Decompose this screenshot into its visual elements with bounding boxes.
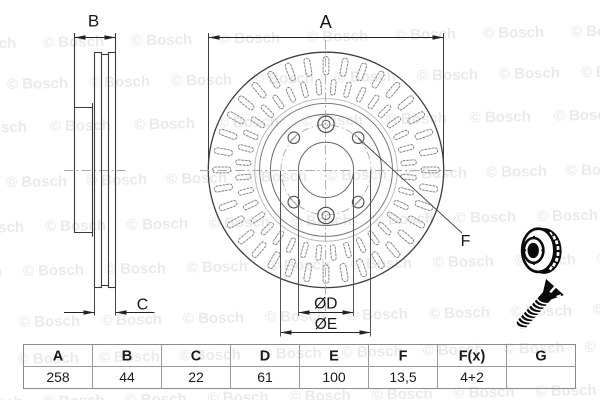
svg-text:© Bosch: © Bosch xyxy=(19,313,80,331)
svg-text:© Bosch: © Bosch xyxy=(218,113,279,131)
svg-text:ØE: ØE xyxy=(315,316,337,333)
svg-text:© Bosch: © Bosch xyxy=(371,385,432,400)
svg-text:© Bosch: © Bosch xyxy=(125,390,186,400)
svg-text:100: 100 xyxy=(322,369,346,385)
svg-text:© Bosch: © Bosch xyxy=(584,338,600,356)
svg-text:A: A xyxy=(53,349,64,365)
svg-text:F: F xyxy=(461,233,471,250)
svg-text:© Bosch: © Bosch xyxy=(0,394,23,400)
svg-text:© Bosch: © Bosch xyxy=(433,253,494,271)
svg-text:© Bosch: © Bosch xyxy=(105,260,166,278)
svg-text:61: 61 xyxy=(257,369,273,385)
svg-text:© Bosch: © Bosch xyxy=(347,306,408,324)
svg-text:© Bosch: © Bosch xyxy=(183,309,244,327)
svg-text:© Bosch: © Bosch xyxy=(7,75,68,93)
svg-text:© Bosch: © Bosch xyxy=(429,304,490,322)
svg-text:© Bosch: © Bosch xyxy=(187,258,248,276)
svg-text:© Bosch: © Bosch xyxy=(43,33,104,51)
svg-text:© Bosch: © Bosch xyxy=(499,65,560,83)
svg-text:ØD: ØD xyxy=(314,296,337,313)
svg-text:© Bosch: © Bosch xyxy=(0,219,24,237)
svg-text:D: D xyxy=(260,349,270,365)
svg-text:A: A xyxy=(320,12,332,32)
svg-text:F(x): F(x) xyxy=(459,349,486,365)
svg-text:© Bosch: © Bosch xyxy=(597,250,600,268)
svg-text:4+2: 4+2 xyxy=(460,369,484,385)
svg-text:G: G xyxy=(535,349,546,365)
svg-text:© Bosch: © Bosch xyxy=(566,161,600,179)
svg-text:© Bosch: © Bosch xyxy=(219,29,280,47)
svg-text:© Bosch: © Bosch xyxy=(0,263,2,281)
svg-text:© Bosch: © Bosch xyxy=(43,392,104,400)
svg-text:258: 258 xyxy=(46,369,70,385)
svg-text:© Bosch: © Bosch xyxy=(23,262,84,280)
svg-text:© Bosch: © Bosch xyxy=(470,108,531,126)
svg-text:© Bosch: © Bosch xyxy=(101,311,162,329)
svg-text:© Bosch: © Bosch xyxy=(537,207,598,225)
svg-text:© Bosch: © Bosch xyxy=(18,350,79,368)
svg-text:© Bosch: © Bosch xyxy=(395,26,456,44)
svg-text:© Bosch: © Bosch xyxy=(171,71,232,89)
svg-text:© Bosch: © Bosch xyxy=(166,170,227,188)
svg-text:© Bosch: © Bosch xyxy=(131,31,192,49)
svg-text:© Bosch: © Bosch xyxy=(483,24,544,42)
svg-text:© Bosch: © Bosch xyxy=(0,35,16,53)
svg-text:© Bosch: © Bosch xyxy=(253,70,314,88)
svg-text:© Bosch: © Bosch xyxy=(341,343,402,361)
svg-text:© Bosch: © Bosch xyxy=(134,115,195,133)
svg-text:B: B xyxy=(122,349,132,365)
svg-text:© Bosch: © Bosch xyxy=(486,163,547,181)
svg-text:44: 44 xyxy=(119,369,135,385)
svg-text:© Bosch: © Bosch xyxy=(89,73,150,91)
svg-text:© Bosch: © Bosch xyxy=(581,63,600,81)
svg-text:© Bosch: © Bosch xyxy=(417,66,478,84)
svg-text:C: C xyxy=(191,349,202,365)
svg-text:E: E xyxy=(329,349,339,365)
svg-text:13,5: 13,5 xyxy=(389,369,416,385)
svg-text:C: C xyxy=(137,297,149,314)
svg-text:B: B xyxy=(88,12,99,31)
svg-text:© Bosch: © Bosch xyxy=(593,301,600,319)
svg-text:© Bosch: © Bosch xyxy=(307,28,368,46)
svg-text:© Bosch: © Bosch xyxy=(326,166,387,184)
svg-text:22: 22 xyxy=(188,369,204,385)
svg-text:© Bosch: © Bosch xyxy=(571,22,600,40)
svg-text:© Bosch: © Bosch xyxy=(535,382,596,400)
svg-text:© Bosch: © Bosch xyxy=(291,212,352,230)
svg-text:© Bosch: © Bosch xyxy=(0,119,27,137)
svg-text:© Bosch: © Bosch xyxy=(127,215,188,233)
svg-text:© Bosch: © Bosch xyxy=(86,171,147,189)
svg-text:© Bosch: © Bosch xyxy=(453,384,514,400)
svg-text:© Bosch: © Bosch xyxy=(455,208,516,226)
svg-text:F: F xyxy=(399,349,408,365)
svg-text:© Bosch: © Bosch xyxy=(503,339,564,357)
svg-text:© Bosch: © Bosch xyxy=(207,389,268,400)
svg-text:© Bosch: © Bosch xyxy=(180,346,241,364)
svg-text:© Bosch: © Bosch xyxy=(6,173,67,191)
svg-text:© Bosch: © Bosch xyxy=(554,106,600,124)
